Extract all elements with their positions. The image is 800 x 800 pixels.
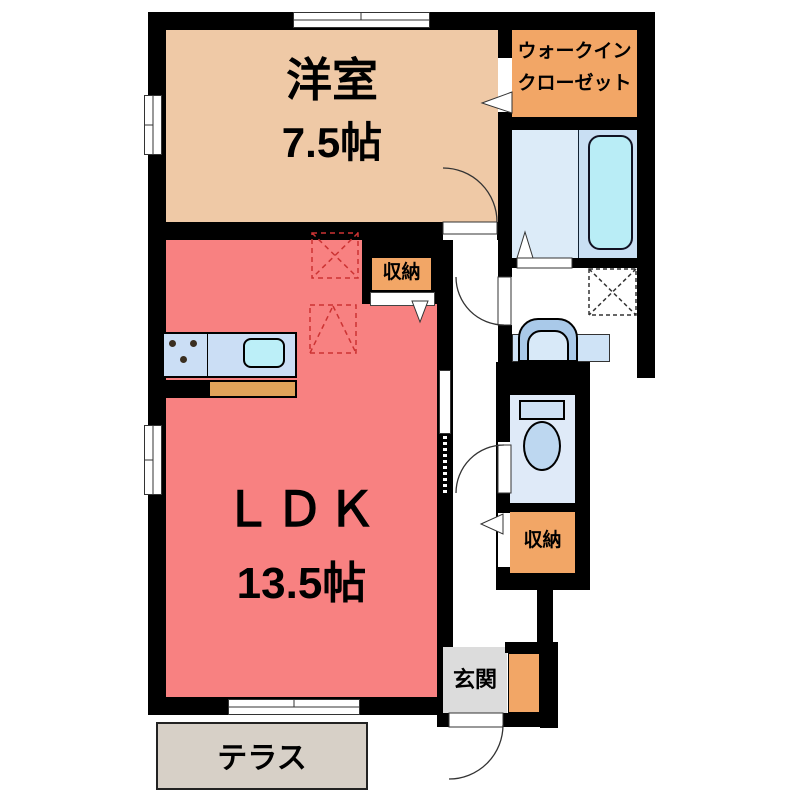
ldk-size: 13.5帖	[166, 560, 437, 608]
terrace-label: テラス	[156, 742, 368, 775]
door-arrow-storage-hall-icon	[481, 514, 503, 534]
door-leaf-bath	[517, 258, 572, 268]
door-swing-entrance	[449, 725, 503, 779]
door-swing-western	[443, 168, 497, 222]
western-room-name: 洋室	[166, 55, 498, 106]
western-room-size: 7.5帖	[166, 120, 498, 166]
door-arrow-storage-ldk-icon	[412, 301, 428, 322]
ldk-name: ＬＤＫ	[166, 485, 437, 538]
dashed-marker-1	[312, 233, 358, 278]
door-leaf-toilet	[498, 445, 511, 493]
door-swing-washroom	[456, 277, 504, 325]
storage-hall-label: 収納	[510, 531, 575, 552]
door-leaf-western	[443, 222, 497, 234]
wic-label-line2: クローゼット	[512, 74, 637, 95]
door-leaf-washroom	[498, 277, 511, 325]
entrance-label: 玄関	[443, 668, 507, 692]
door-arrow-bath-icon	[517, 232, 533, 258]
storage-ldk-label: 収納	[370, 263, 433, 284]
door-leaf-entrance	[449, 713, 503, 727]
wic-label-line1: ウォークイン	[512, 42, 637, 63]
washer-pan	[589, 269, 636, 315]
floorplan: 洋室 7.5帖 ウォークイン クローゼット ＬＤＫ 13.5帖 収納 収納 玄関…	[0, 0, 800, 800]
door-swing-toilet	[456, 445, 504, 493]
dashed-marker-2	[310, 305, 356, 353]
